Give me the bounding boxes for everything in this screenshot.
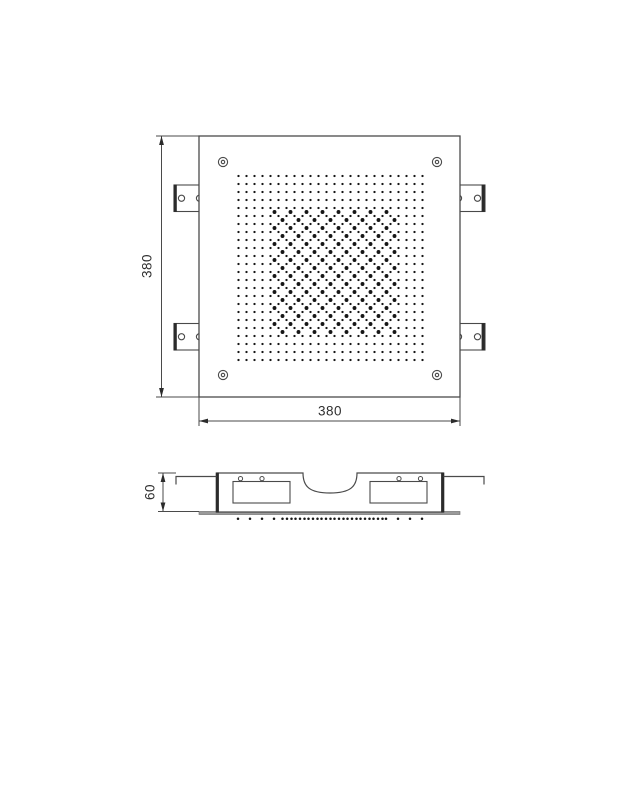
dimension-label-top-height: 380	[140, 254, 155, 278]
side-view-nozzles	[237, 518, 424, 521]
side-view-dimension	[158, 473, 199, 512]
dimension-label-top-width: 380	[318, 404, 342, 419]
technical-drawing-canvas: 380 380 60	[0, 0, 618, 800]
shower-head-drawing	[0, 0, 618, 800]
side-view	[176, 473, 484, 515]
dimension-label-side-height: 60	[143, 484, 158, 500]
